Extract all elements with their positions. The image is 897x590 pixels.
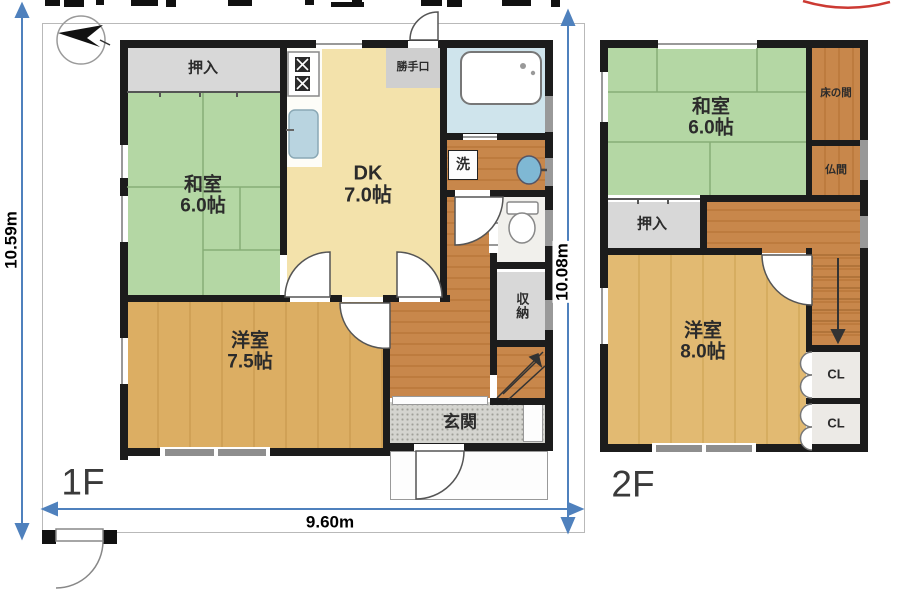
entrance-porch	[390, 451, 548, 500]
room-bathroom-1f	[447, 47, 545, 133]
genkan-step	[392, 396, 488, 405]
dimension-site-width: 9.60m	[306, 512, 354, 531]
hallway-1f-south	[390, 302, 447, 398]
floor-plan: 押入 和室6.0帖 DK7.0帖 勝手口 洗 収納 洋室7.5帖 玄関 1F 和…	[0, 0, 897, 590]
label-washitsu-1f: 和室6.0帖	[180, 175, 225, 218]
label-yoshitsu-2f: 洋室8.0帖	[680, 321, 725, 364]
room-toilet-1f	[497, 197, 545, 262]
kitchen-counter	[287, 47, 322, 167]
label-laundry: 洗	[456, 157, 470, 173]
stairs-2f	[812, 253, 860, 345]
label-cl-upper: CL	[827, 368, 844, 383]
label-floor-2f: 2F	[611, 463, 654, 504]
stamp-fragment	[803, 1, 890, 8]
gate-door	[42, 529, 117, 588]
dimension-site-height: 10.59m	[1, 211, 20, 269]
label-yoshitsu-1f: 洋室7.5帖	[227, 331, 272, 374]
label-tokonoma: 床の間	[820, 88, 852, 100]
label-katteguchi: 勝手口	[397, 61, 430, 73]
room-yoshitsu-1f	[127, 302, 383, 448]
shoe-cabinet	[523, 403, 543, 442]
label-cl-lower: CL	[827, 417, 844, 432]
label-storage: 収納	[514, 292, 529, 320]
label-butsuma: 仏間	[825, 164, 847, 176]
label-oshiire-1f: 押入	[188, 61, 218, 78]
hallway-1f	[447, 197, 490, 398]
hallway-2f	[707, 202, 860, 253]
label-floor-1f: 1F	[61, 461, 104, 502]
label-washitsu-2f: 和室6.0帖	[688, 97, 733, 140]
stairs-1f	[497, 347, 545, 398]
dimension-building-height: 10.08m	[552, 241, 571, 303]
label-dk-1f: DK7.0帖	[344, 163, 392, 208]
label-oshiire-2f: 押入	[637, 217, 667, 234]
label-genkan: 玄関	[443, 412, 477, 431]
